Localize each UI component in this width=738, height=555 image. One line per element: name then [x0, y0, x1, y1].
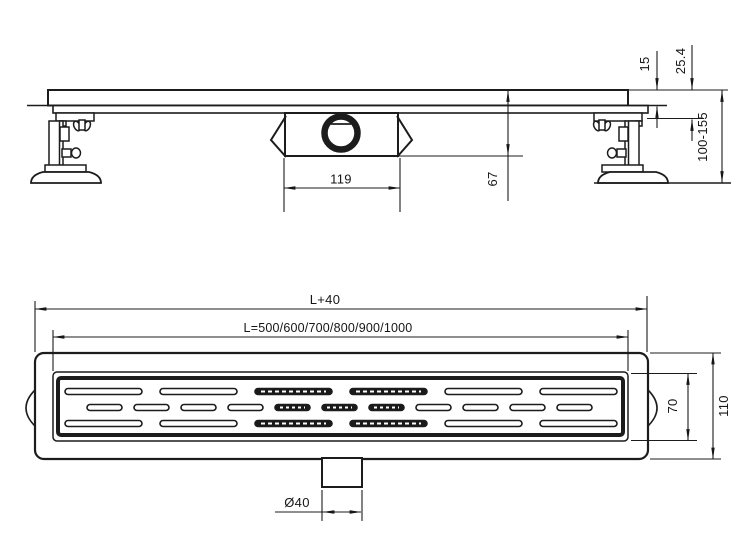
- drain-trap-body: [271, 113, 412, 157]
- leveling-foot-left: [31, 113, 101, 183]
- foot-pad-right: [598, 172, 668, 183]
- dim-flange-depth-label: 25.4: [673, 48, 688, 75]
- technical-drawing: 119 67 15 25.4 100-155: [0, 0, 738, 555]
- trap-wing-right: [397, 116, 412, 157]
- dim-install-height-label: 100-155: [695, 112, 710, 162]
- plan-view: L+40 L=500/600/700/800/900/1000 70 110: [26, 292, 731, 521]
- drawing-canvas: 119 67 15 25.4 100-155: [0, 0, 738, 555]
- side-view: 119 67 15 25.4 100-155: [27, 45, 731, 212]
- trap-wing-left: [271, 116, 286, 157]
- dim-flange-width-label: 110: [716, 395, 731, 417]
- dim-110: [650, 353, 721, 459]
- dim-outlet-diameter-label: Ø40: [284, 495, 309, 510]
- dim-rim-height-label: 15: [637, 56, 652, 71]
- end-cap-right: [648, 390, 657, 426]
- dim-channel-length-label: L=500/600/700/800/900/1000: [244, 321, 413, 335]
- dim-trap-height-label: 67: [485, 171, 500, 186]
- dim-grate-width-label: 70: [665, 398, 680, 413]
- drain-outlet-pipe: [322, 458, 362, 487]
- dim-overall-length-label: L+40: [310, 292, 340, 307]
- foot-pad-left: [31, 172, 101, 183]
- dim-body-width-label: 119: [330, 172, 352, 187]
- channel-top-band: [48, 90, 628, 106]
- channel-lower-band: [53, 106, 648, 114]
- reference-lines-right: [628, 90, 728, 119]
- end-cap-left: [26, 390, 35, 426]
